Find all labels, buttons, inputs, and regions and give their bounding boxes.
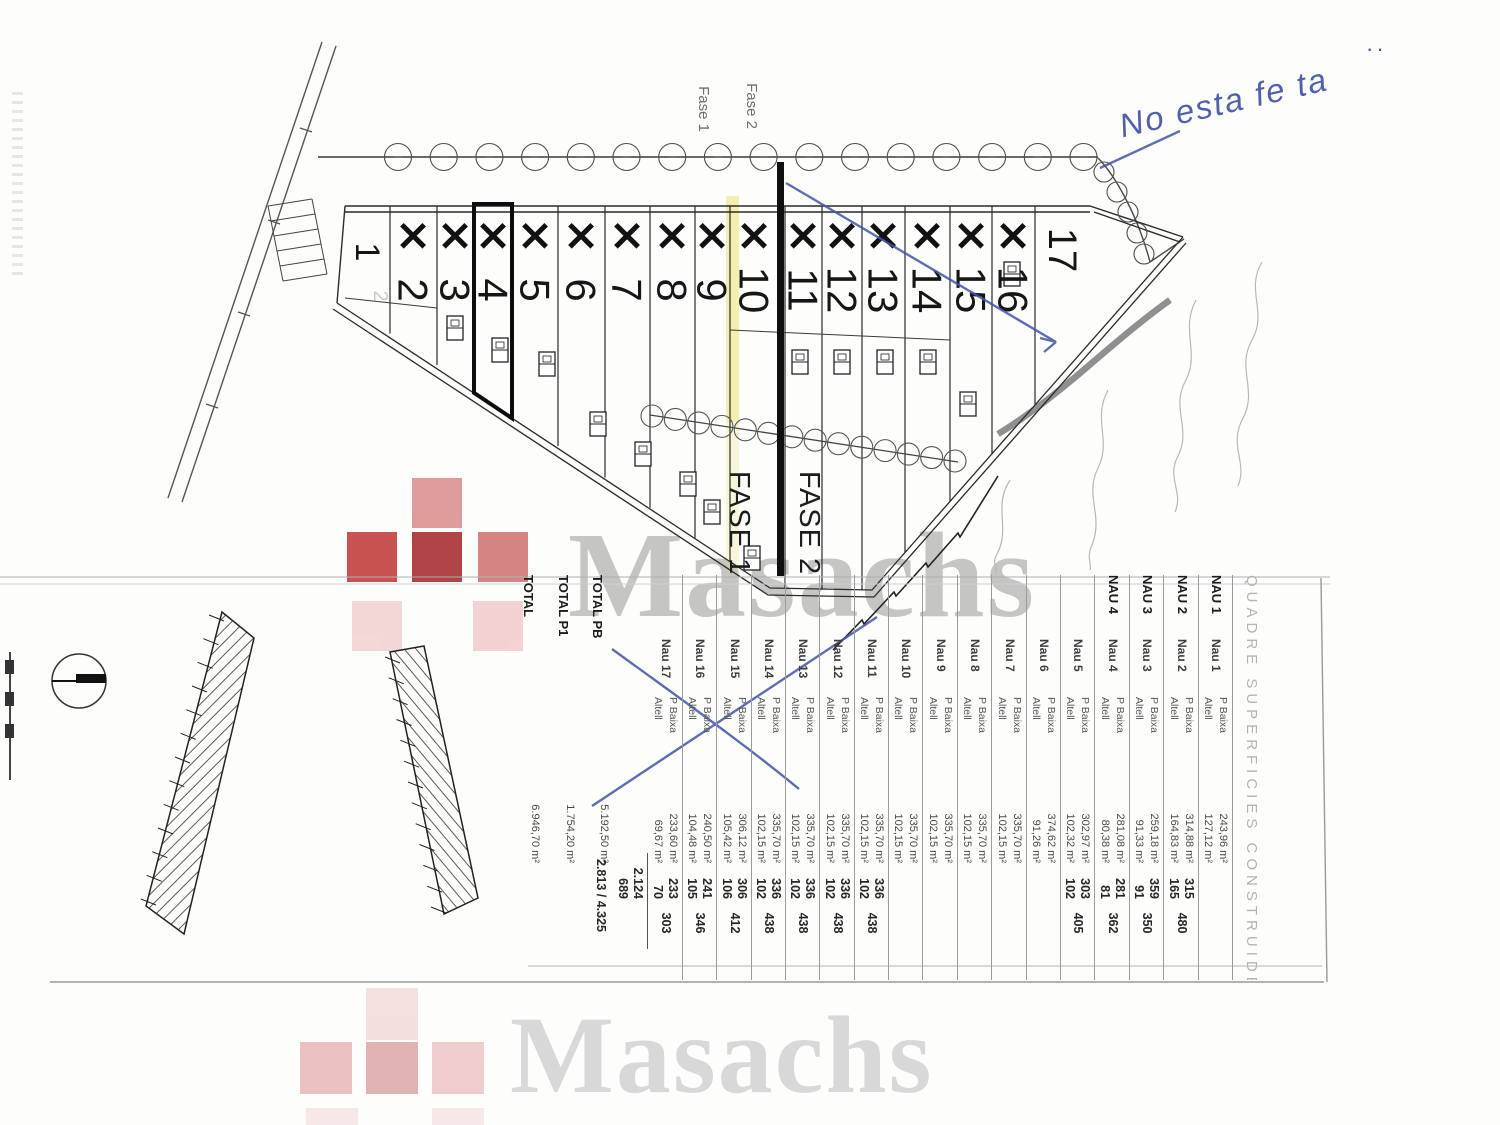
unit-number: 12: [819, 267, 866, 314]
unit-number: 15: [948, 267, 995, 314]
unit-x-mark: ×: [953, 210, 990, 261]
table-row: NAU 4Nau 4P BaixaAltell281,08 m²80,38 m²…: [1094, 575, 1128, 980]
unit-number: 14: [904, 267, 951, 314]
table-row: Nau 13P BaixaAltell335,70 m²102,15 m²336…: [785, 575, 819, 980]
table-row: TOTAL PB5.192,50 m²2.813 / 4.325: [579, 575, 613, 980]
table-rows: NAU 1Nau 1P BaixaAltell243,96 m²127,12 m…: [510, 575, 1232, 980]
table-row: Nau 10P BaixaAltell335,70 m²102,15 m²: [888, 575, 922, 980]
table-row: Nau 7P BaixaAltell335,70 m²102,15 m²: [991, 575, 1025, 980]
handwritten-note-dots: ··: [1366, 36, 1387, 62]
unit-number: 2: [390, 278, 437, 301]
unit-x-mark: ×: [517, 210, 554, 261]
table-title: QUADRE SUPERFICIES CONSTRUIDES: [1232, 575, 1266, 980]
unit-x-mark: ×: [563, 210, 600, 261]
table-row: Nau 9P BaixaAltell335,70 m²102,15 m²: [922, 575, 956, 980]
scanned-site-plan-page: { "watermark": { "brand": "Masachs" }, "…: [0, 0, 1500, 1125]
unit-x-mark: ×: [736, 210, 773, 261]
table-row: 2.124689: [613, 575, 647, 980]
ghost-label: 2: [369, 290, 391, 301]
table-row: Nau 8P BaixaAltell335,70 m²102,15 m²: [957, 575, 991, 980]
table-row: Nau 5P BaixaAltell302,97 m²102,32 m²3031…: [1060, 575, 1094, 980]
table-row: Nau 6P BaixaAltell374,62 m²91,26 m²: [1026, 575, 1060, 980]
unit-x-mark: ×: [437, 210, 474, 261]
unit-x-mark: ×: [694, 210, 731, 261]
fase-divider-line: [777, 162, 784, 576]
unit-number: 6: [558, 278, 605, 301]
unit-strips: 12×3×4×5×6×7×8×9×10×11×12×13×14×15×16×17…: [333, 144, 1186, 598]
fase2-large-label: FASE 2: [794, 463, 824, 583]
subtotal-rule: [647, 853, 648, 949]
unit-x-mark: ×: [395, 210, 432, 261]
masachs-logo-center: [347, 478, 528, 651]
table-row: NAU 3Nau 3P BaixaAltell259,18 m²91,33 m²…: [1129, 575, 1163, 980]
grand-total-values: 2.813 / 4.325: [594, 859, 608, 955]
isometric-building-left: [141, 612, 254, 934]
table-row: Nau 17P BaixaAltell233,60 m²69,67 m²2337…: [647, 575, 681, 980]
surfaces-table: QUADRE SUPERFICIES CONSTRUIDES NAU 1Nau …: [509, 575, 1266, 980]
unit-number: 9: [689, 278, 736, 301]
table-row: Nau 14P BaixaAltell335,70 m²102,15 m²336…: [751, 575, 785, 980]
north-compass-icon: [52, 654, 106, 708]
unit-number: 5: [512, 278, 559, 301]
unit-number: 8: [649, 278, 696, 301]
unit-number: 10: [731, 267, 778, 314]
unit-number: 1: [348, 243, 386, 262]
parking-bays: [268, 199, 327, 281]
table-row: Nau 11P BaixaAltell335,70 m²102,15 m²336…: [854, 575, 888, 980]
scale-bar: [5, 652, 14, 780]
unit-number: 4: [470, 278, 517, 301]
unit-x-mark: ×: [865, 210, 902, 261]
table-row: NAU 2Nau 2P BaixaAltell314,88 m²164,83 m…: [1163, 575, 1197, 980]
table-row: TOTAL P11.754,20 m²: [544, 575, 578, 980]
unit-x-mark: ×: [995, 210, 1032, 261]
table-row: TOTAL6.946,70 m²: [510, 575, 544, 980]
fase1-large-label: FASE 1: [724, 463, 754, 583]
unit-number: 13: [860, 267, 907, 314]
unit-x-mark: ×: [909, 210, 946, 261]
table-row: Nau 16P BaixaAltell240,50 m²104,48 m²241…: [682, 575, 716, 980]
isometric-building-right: [385, 646, 478, 914]
fase1-small-label: Fase 1: [694, 73, 712, 145]
table-row: Nau 15P BaixaAltell306,12 m²105,42 m²306…: [716, 575, 750, 980]
table-row: NAU 1Nau 1P BaixaAltell243,96 m²127,12 m…: [1198, 575, 1232, 980]
unit-number: 7: [604, 278, 651, 301]
unit-x-mark: ×: [785, 210, 822, 261]
unit-number: 17: [1040, 228, 1084, 273]
masachs-logo-bottom: [300, 988, 484, 1125]
unit-x-mark: ×: [654, 210, 691, 261]
unit-x-mark: ×: [609, 210, 646, 261]
table-row: Nau 12P BaixaAltell335,70 m²102,15 m²336…: [819, 575, 853, 980]
unit-x-mark: ×: [475, 210, 512, 261]
fase2-small-label: Fase 2: [742, 70, 760, 142]
